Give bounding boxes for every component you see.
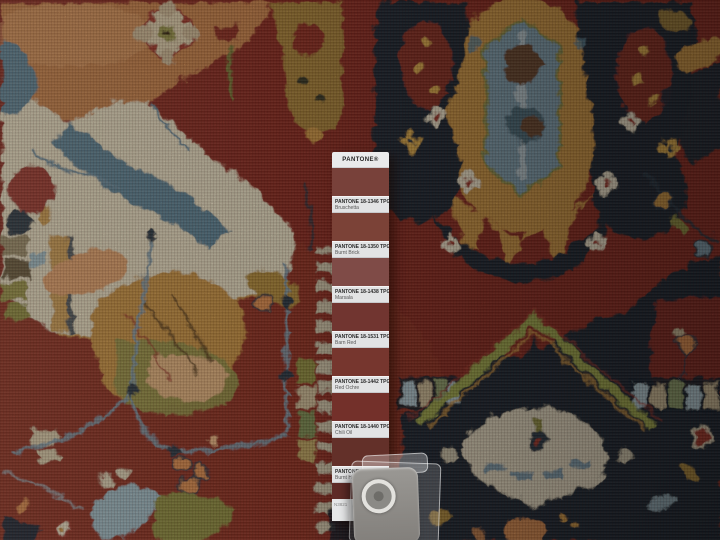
- pantone-swatch-label: PANTONE 18-1440 TPG Chili Oil: [332, 421, 389, 438]
- pantone-swatch-label: PANTONE 18-1346 TPG Bruschetta: [332, 196, 389, 213]
- pantone-swatch-name: Chili Oil: [335, 430, 386, 436]
- pantone-swatch-label: PANTONE 18-1531 TPG Barn Red: [332, 331, 389, 348]
- pantone-swatch-chip: [332, 438, 389, 466]
- pantone-swatch-name: Marsala: [335, 295, 386, 301]
- camera-lens-core: [373, 491, 383, 501]
- pantone-swatch-label: PANTONE 18-1350 TPG Burnt Brick: [332, 241, 389, 258]
- pantone-swatch-chip: [332, 258, 389, 286]
- pantone-swatch-name: Burnt Brick: [335, 250, 386, 256]
- pantone-swatch-chip: [332, 168, 389, 196]
- pantone-swatch-name: Bruschetta: [335, 205, 386, 211]
- pantone-swatch-label: PANTONE 18-1442 TPG Red Ochre: [332, 376, 389, 393]
- pantone-swatch-name: Red Ochre: [335, 385, 386, 391]
- pantone-swatch-name: Barn Red: [335, 340, 386, 346]
- pantone-swatch-label: PANTONE 18-1438 TPG Marsala: [332, 286, 389, 303]
- pantone-strip-code: N3821: [334, 502, 347, 507]
- pantone-logo: PANTONE®: [332, 152, 389, 168]
- rug-photo: PANTONE® PANTONE 18-1346 TPG Bruschetta …: [0, 0, 720, 540]
- pantone-color-strip: PANTONE® PANTONE 18-1346 TPG Bruschetta …: [332, 152, 389, 521]
- pantone-swatch-chip: [332, 348, 389, 376]
- pantone-swatch-chip: [332, 303, 389, 331]
- camera-lens: [361, 479, 396, 514]
- gray-device: [352, 467, 421, 540]
- pantone-swatch-chip: [332, 213, 389, 241]
- pantone-swatch-chip: [332, 393, 389, 421]
